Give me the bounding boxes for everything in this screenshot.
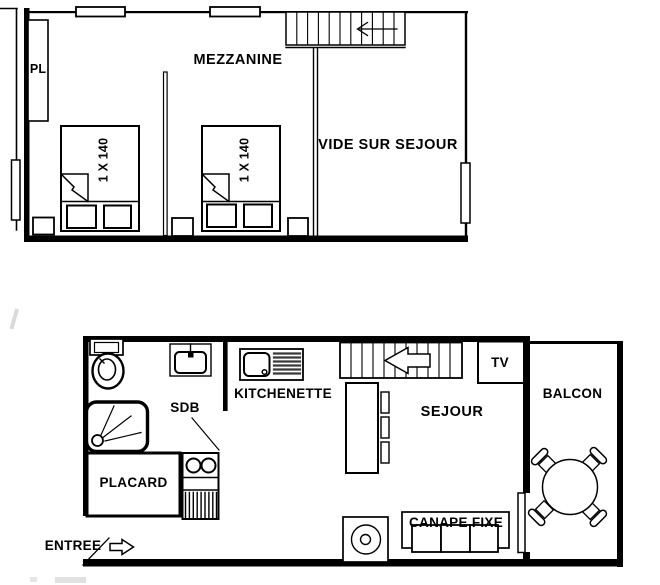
- closet-label: PL: [30, 62, 47, 76]
- label-pointer-line: [192, 418, 219, 450]
- bed-size-label: 1 X 140: [96, 138, 110, 183]
- nightstand-icon: [33, 218, 54, 235]
- bed-size-label: 1 X 140: [237, 138, 251, 183]
- room-label-vide-sur-sejour: VIDE SUR SEJOUR: [318, 137, 458, 153]
- stairs-icon: [286, 12, 405, 48]
- tv-label: TV: [491, 355, 509, 370]
- nightstand-icon: [288, 218, 308, 236]
- balcony-top-wall: [530, 341, 617, 344]
- shower-icon: [87, 402, 148, 452]
- room-label-sejour: SEJOUR: [421, 404, 484, 420]
- sejour-balcony-wall: [523, 552, 530, 562]
- stairs-icon: [340, 343, 462, 379]
- room-label-sdb: SDB: [170, 400, 199, 415]
- floorplan-drawing: PL 1 X 140 1 X 140 MEZZANINE VIDE SUR SE…: [0, 0, 660, 585]
- glass-door-icon: [518, 493, 525, 553]
- floorplan: PL 1 X 140 1 X 140 MEZZANINE VIDE SUR SE…: [0, 0, 660, 585]
- balcony-table-icon: [543, 460, 598, 515]
- bottom-wall: [24, 236, 468, 243]
- closet-pl: PL: [28, 20, 48, 121]
- chair-icon: [381, 417, 389, 438]
- window-icon: [461, 163, 470, 223]
- bed-icon: 1 X 140: [61, 126, 139, 231]
- kitchen-sink-icon: [240, 349, 303, 380]
- room-label-mezzanine: MEZZANINE: [193, 52, 282, 68]
- partition-wall: [164, 72, 168, 236]
- room-label-balcon: BALCON: [543, 386, 603, 401]
- top-wall: [83, 336, 530, 342]
- ground-floor-plan: TV: [45, 336, 623, 567]
- sofa-icon: CANAPE FIXE: [402, 512, 509, 552]
- side-table-icon: [343, 517, 388, 562]
- bar-table-icon: [346, 383, 378, 473]
- closet-placard: PLACARD: [87, 453, 180, 516]
- washbasin-icon: [170, 344, 211, 376]
- bed-icon: 1 X 140: [202, 126, 280, 231]
- window-icon: [76, 7, 125, 17]
- toilet-icon: [90, 339, 124, 389]
- balcony-right-wall: [617, 341, 623, 567]
- mezzanine-plan: PL 1 X 140 1 X 140 MEZZANINE VIDE SUR SE…: [0, 7, 470, 242]
- nightstand-icon: [172, 218, 193, 236]
- closet-label: PLACARD: [99, 475, 167, 490]
- room-label-kitchenette: KITCHENETTE: [234, 386, 332, 401]
- chair-icon: [381, 442, 389, 463]
- room-label-entree: ENTREE: [45, 538, 102, 553]
- chair-icon: [381, 392, 389, 413]
- sofa-label: CANAPE FIXE: [409, 515, 503, 530]
- window-icon: [210, 7, 260, 17]
- stove-icon: [183, 453, 219, 519]
- bathroom-wall: [223, 342, 228, 411]
- window-icon: [12, 160, 21, 220]
- railing-icon: [314, 48, 318, 236]
- sejour-balcony-wall: [523, 342, 530, 493]
- tv-unit: TV: [478, 342, 525, 384]
